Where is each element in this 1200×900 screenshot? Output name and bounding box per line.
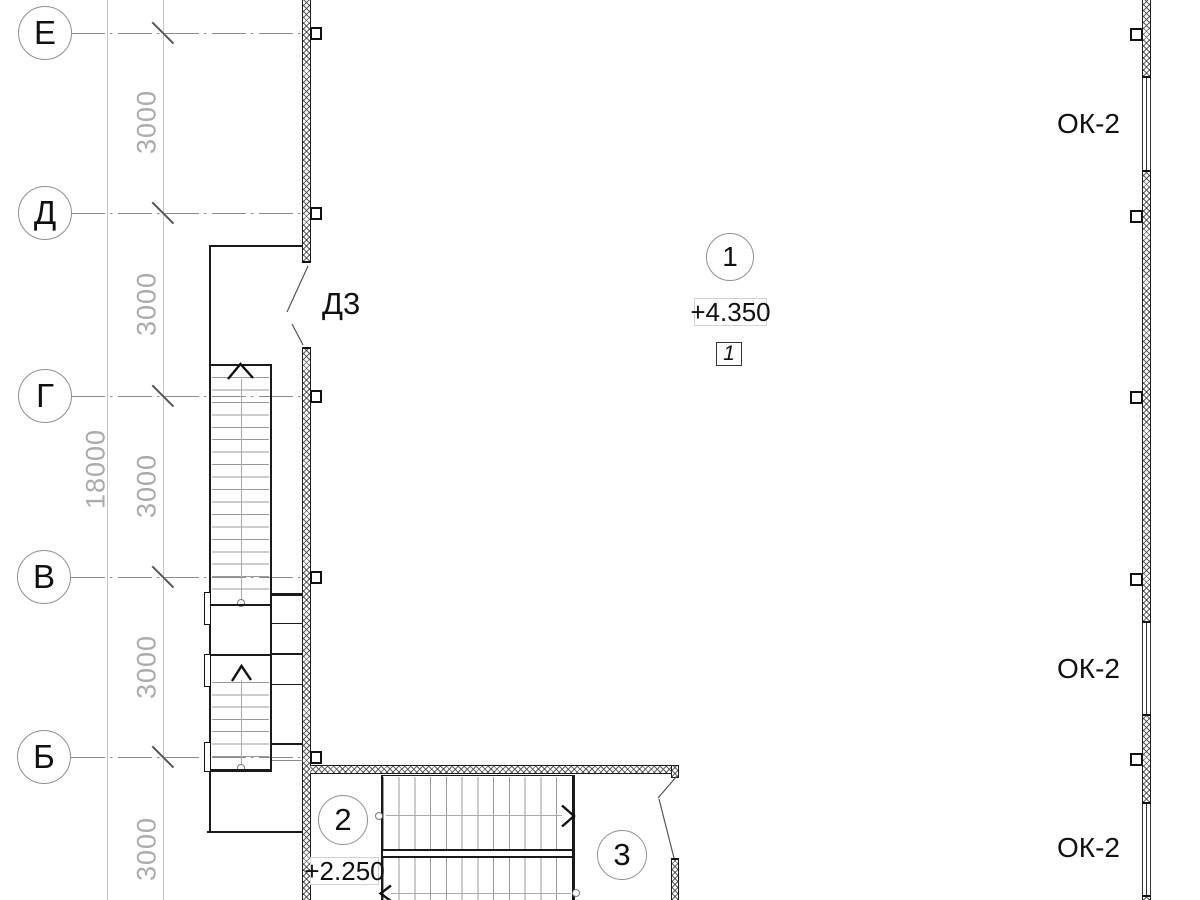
bay-dimension-4: 3000 xyxy=(132,817,163,881)
floor-number-box: 1 xyxy=(716,342,742,366)
pilaster xyxy=(1130,391,1143,404)
pilaster xyxy=(1130,210,1143,223)
grid-axis-line-v xyxy=(71,577,311,578)
pilaster xyxy=(310,751,322,764)
walk-line-start-circle xyxy=(572,889,580,897)
pilaster xyxy=(310,207,322,220)
stair-strip-line xyxy=(272,653,303,655)
stairwell-jamb xyxy=(204,742,211,772)
bay-dimension-1: 3000 xyxy=(132,272,163,336)
pilaster xyxy=(1130,28,1143,41)
bay-dimension-line xyxy=(163,0,164,900)
pilaster xyxy=(1130,573,1143,586)
stair-landing-line xyxy=(211,604,270,606)
elevation-mark-lower: +2.250 xyxy=(310,857,379,885)
grid-axis-line-d xyxy=(71,213,311,214)
pilaster xyxy=(310,571,322,584)
pilaster xyxy=(1130,753,1143,766)
door-leaf-line xyxy=(287,266,308,312)
marker-circle-2-label: 2 xyxy=(334,802,351,838)
stair-walk-line xyxy=(241,379,242,601)
door-leaf-line xyxy=(659,799,674,858)
stair-strip-line xyxy=(272,623,303,625)
stair2-right-line xyxy=(572,775,575,900)
stair2-walk-line xyxy=(386,815,562,816)
stairwell-bottom-line xyxy=(207,831,303,833)
bay-dimension-2: 3000 xyxy=(132,454,163,518)
stair-strip-line xyxy=(272,593,303,596)
stair2-walk-line xyxy=(391,893,571,894)
marker-circle-3: 3 xyxy=(597,830,647,880)
wall-right-seg xyxy=(1142,895,1151,900)
bay-dimension-0: 3000 xyxy=(132,90,163,154)
pilaster xyxy=(310,390,322,403)
grid-bubble-v: В xyxy=(17,550,71,604)
door-leaf-line xyxy=(292,324,303,345)
floor-plan-canvas: Е Д Г В Б 18000 3000 3000 3000 3000 3000… xyxy=(0,0,1200,900)
elevation-mark-upper: +4.350 xyxy=(694,298,767,326)
wall-door-stub xyxy=(671,858,679,900)
window-ok2-2 xyxy=(1142,623,1151,714)
wall-right-seg xyxy=(1142,0,1151,78)
window-ok2-3 xyxy=(1142,804,1151,895)
grid-axis-line-b xyxy=(71,757,311,758)
grid-bubble-g: Г xyxy=(18,369,72,423)
stairwell-top-line xyxy=(211,245,302,247)
stair2-treads-upper xyxy=(383,777,572,849)
stair2-top-line xyxy=(383,775,572,777)
window-ok2-1 xyxy=(1142,78,1151,170)
grid-bubble-e: Е xyxy=(18,6,72,60)
door-leaf-line xyxy=(658,776,677,798)
stair2-treads-lower xyxy=(383,858,572,900)
stairwell-jamb xyxy=(204,654,211,687)
grid-label-b: Б xyxy=(33,738,55,776)
marker-circle-1: 1 xyxy=(706,233,754,281)
stair-strip-line xyxy=(272,684,303,686)
pilaster xyxy=(310,27,322,40)
marker-circle-2: 2 xyxy=(318,795,368,845)
stair2-landing-line xyxy=(381,849,574,851)
marker-circle-3-label: 3 xyxy=(613,837,630,873)
grid-axis-line-e xyxy=(71,33,311,34)
grid-label-v: В xyxy=(33,558,55,596)
wall-right-seg xyxy=(1142,714,1151,804)
marker-circle-1-label: 1 xyxy=(722,241,738,273)
wall-left-lower xyxy=(302,347,311,900)
overall-dimension-label: 18000 xyxy=(81,429,112,509)
grid-axis-line-g xyxy=(71,396,311,397)
stair-strip-line xyxy=(272,743,303,746)
wall-end-cap xyxy=(671,765,679,778)
grid-bubble-b: Б xyxy=(17,730,71,784)
stairwell-jamb xyxy=(204,592,211,625)
stair-direction-arrow-up xyxy=(232,666,251,681)
stair-walk-line xyxy=(241,680,242,766)
window-tag-3: ОК-2 xyxy=(1057,832,1120,864)
stair-strip-line xyxy=(272,760,303,761)
bay-dimension-3: 3000 xyxy=(132,635,163,699)
door-tag: Д3 xyxy=(322,286,360,322)
wall-horizontal xyxy=(310,765,672,774)
window-tag-1: ОК-2 xyxy=(1057,108,1120,140)
grid-bubble-d: Д xyxy=(18,186,72,240)
grid-label-d: Д xyxy=(34,194,56,232)
stair-flight2-top-line xyxy=(211,654,270,656)
stair-flight-bottom-line xyxy=(211,769,270,772)
grid-label-g: Г xyxy=(36,377,54,415)
grid-label-e: Е xyxy=(34,14,56,52)
wall-right-seg xyxy=(1142,170,1151,623)
window-tag-2: ОК-2 xyxy=(1057,653,1120,685)
walk-line-start-circle xyxy=(375,812,383,820)
stair-flight-top-line xyxy=(211,364,271,367)
stair-flight-right-line xyxy=(270,364,272,772)
